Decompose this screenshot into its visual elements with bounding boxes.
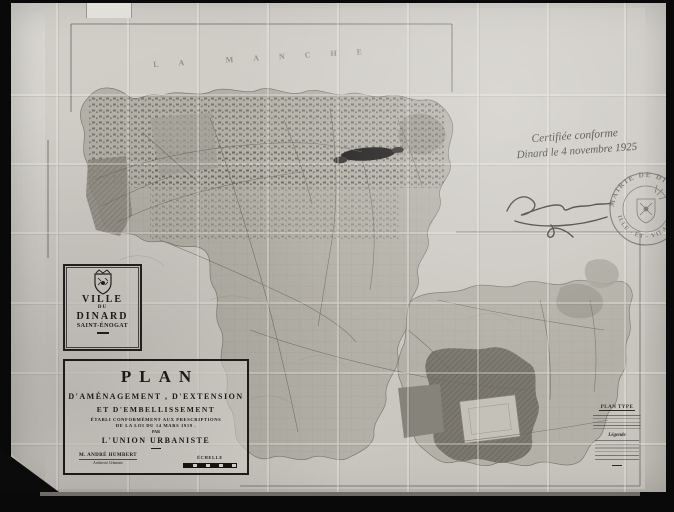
- title-line-par: PAR: [65, 429, 247, 434]
- photo-bottom-edge: [40, 492, 640, 496]
- coat-of-arms-icon: [65, 269, 140, 295]
- title-line-union-urbaniste: L'UNION URBANISTE: [65, 436, 247, 445]
- cartouche-saint-enogat: SAINT-ÉNOGAT: [65, 322, 140, 330]
- author-title: Architecte Urbaniste: [79, 459, 137, 465]
- title-line-loi: DE LA LOI DU 14 MARS 1919 .: [65, 423, 247, 428]
- legend-title: Légende: [589, 433, 645, 438]
- mounting-tab: [86, 3, 132, 18]
- legend-rule: [612, 465, 622, 466]
- mairie-stamp: MAIRIE DE DINARD ILLE - ET - VILAINE: [609, 172, 666, 253]
- scale-block: ÉCHELLE: [183, 455, 237, 468]
- author-credit: M. ANDRÉ HUMBERT Architecte Urbaniste: [79, 453, 137, 468]
- photo-paper: LA MANCHE VILLE DU DINARD SAINT-ÉNOGAT P…: [11, 3, 666, 492]
- legend-entries: [595, 440, 639, 462]
- stamp-arms-icon: [637, 185, 666, 223]
- stamp-arc-top: MAIRIE DE DINARD: [609, 172, 666, 208]
- title-line-embellissement: ET D'EMBELLISSEMENT: [65, 405, 247, 414]
- title-line-etabli: ÉTABLI CONFORMÉMENT AUX PRESCRIPTIONS: [65, 417, 247, 422]
- legend-heading: PLAN TYPE: [599, 405, 636, 411]
- cartouche-dinard: DINARD: [65, 311, 140, 322]
- photograph-frame: LA MANCHE VILLE DU DINARD SAINT-ÉNOGAT P…: [0, 0, 674, 512]
- cartouche-rule: [97, 332, 109, 334]
- frame-bottom-edge: [0, 492, 674, 512]
- scale-label: ÉCHELLE: [183, 455, 237, 460]
- cartouche-ville: VILLE: [65, 295, 140, 305]
- scale-bar: [183, 463, 237, 468]
- city-cartouche: VILLE DU DINARD SAINT-ÉNOGAT: [63, 264, 142, 351]
- legend-notes-lines: [589, 415, 645, 429]
- author-name: M. ANDRÉ HUMBERT: [79, 453, 137, 458]
- title-block: PLAN D'AMÉNAGEMENT , D'EXTENSION ET D'EM…: [63, 359, 249, 475]
- stamp-arc-bottom: ILLE - ET - VILAINE: [616, 215, 666, 240]
- legend-block: PLAN TYPE Légende: [589, 395, 645, 466]
- title-line-amenagement: D'AMÉNAGEMENT , D'EXTENSION: [65, 392, 247, 401]
- plan-title: PLAN: [65, 367, 247, 387]
